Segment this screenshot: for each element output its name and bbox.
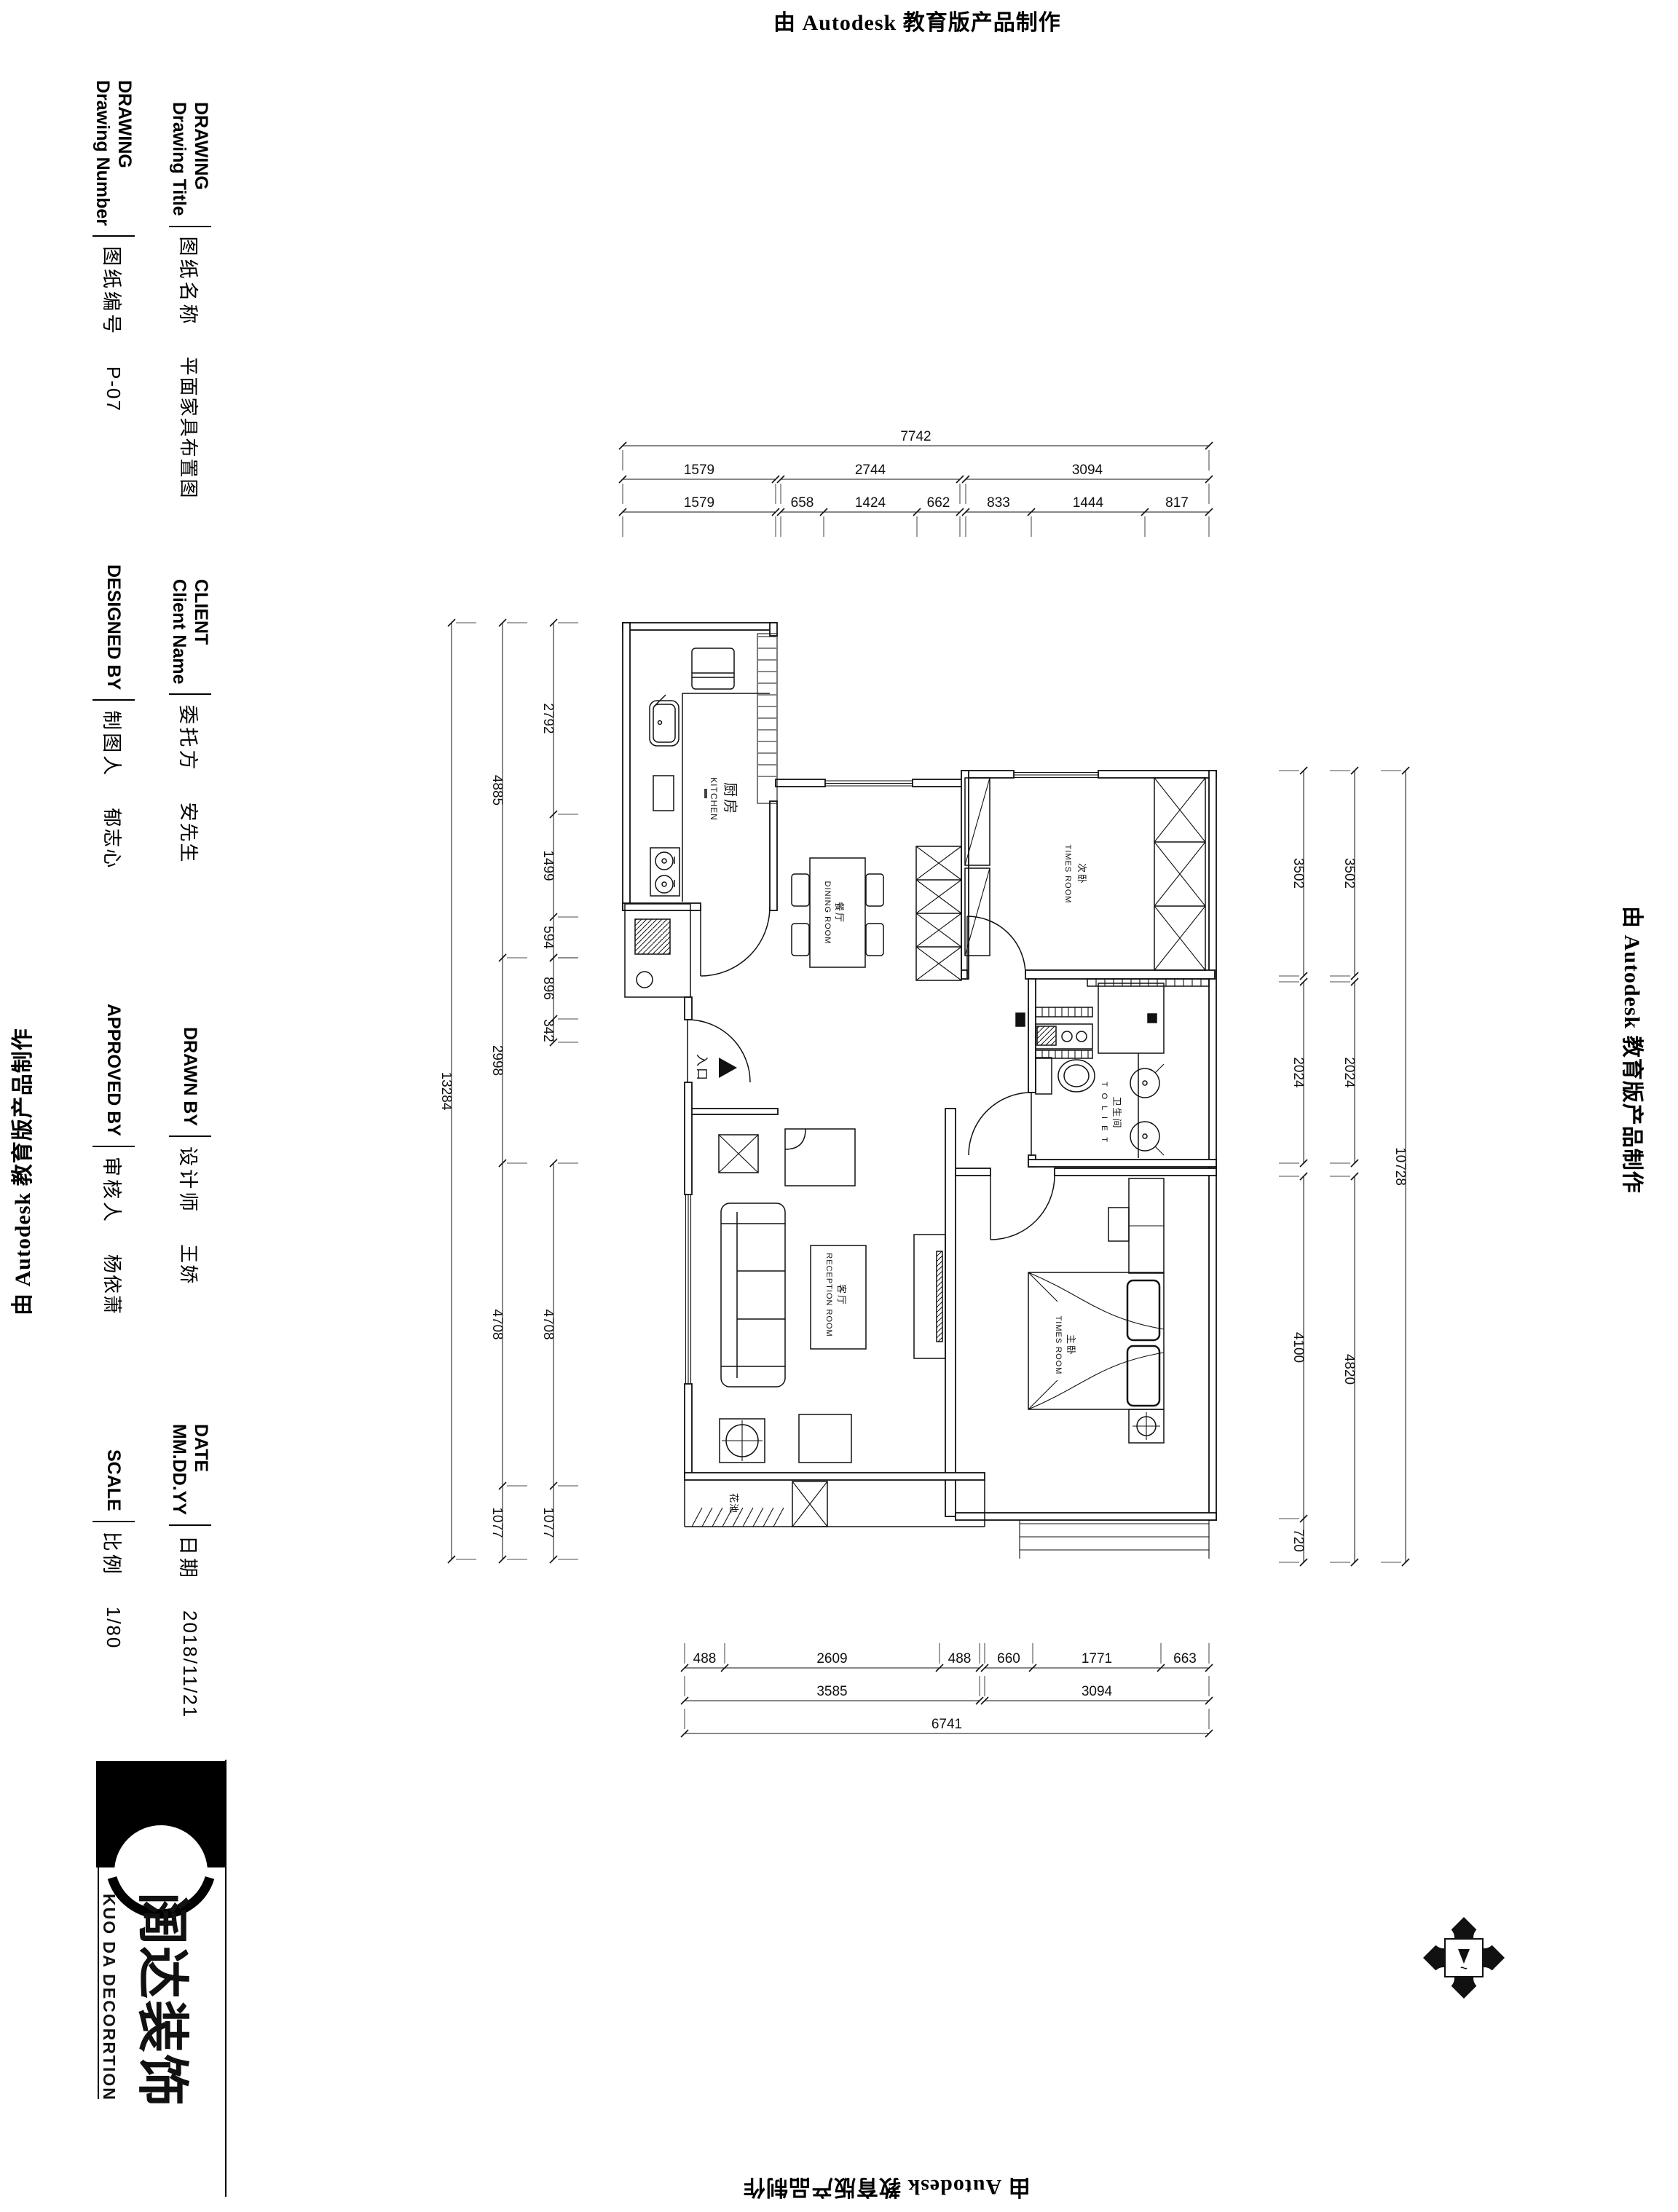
svg-text:次卧: 次卧	[1076, 863, 1087, 885]
titleblock-date: DATEMM.DD.YY 日期 2018/11/21	[162, 1424, 218, 1718]
logo-text-en: KUO DA DECORRTION	[100, 1894, 119, 2101]
svg-text:2792: 2792	[540, 703, 556, 733]
kuoda-logo-icon: 阔达装饰 KUO DA DECORRTION	[96, 1761, 226, 2103]
label-cn: 设计师	[176, 1146, 205, 1214]
svg-text:2744: 2744	[855, 463, 886, 478]
heading: DRAWN BY	[179, 1027, 201, 1126]
svg-text:T O L I E T: T O L I E T	[1100, 1082, 1108, 1144]
value: 2018/11/21	[179, 1610, 202, 1718]
svg-text:658: 658	[791, 495, 814, 511]
svg-text:主卧: 主卧	[1066, 1334, 1076, 1356]
master-label: 主卧 TIMES ROOM	[1054, 1316, 1076, 1375]
label-cn: 委托方	[176, 704, 205, 772]
svg-text:720: 720	[1291, 1529, 1306, 1552]
heading: CLIENT	[190, 579, 212, 684]
titleblock-client: CLIENTClient Name 委托方 安先生	[162, 579, 218, 864]
svg-text:4708: 4708	[540, 1309, 556, 1339]
label-cn: 制图人	[100, 710, 128, 778]
subheading: MM.DD.YY	[168, 1424, 190, 1515]
titleblock-drawn-by: DRAWN BY 设计师 王娇	[162, 1027, 218, 1285]
living-label: 客厅 RECEPTION ROOM	[824, 1253, 847, 1337]
svg-text:1077: 1077	[540, 1507, 556, 1538]
value: 王娇	[177, 1244, 204, 1285]
titleblock-approved-by: APPROVED BY 审核人 杨依萧	[85, 1004, 142, 1315]
svg-text:10728: 10728	[1393, 1147, 1408, 1186]
titleblock-drawing-title: DRAWINGDrawing Title 图纸名称 平面家具布置图	[162, 102, 218, 500]
entrance-arrow-icon	[719, 1058, 737, 1078]
autodesk-credit-bottom: 由 Autodesk 教育版产品制作	[743, 2173, 1031, 2205]
svg-text:厨房: 厨房	[722, 782, 738, 816]
svg-text:4100: 4100	[1291, 1332, 1306, 1363]
north-arrow-icon	[1420, 1914, 1508, 2002]
master-furniture	[1028, 1178, 1164, 1443]
svg-text:花池: 花池	[728, 1493, 739, 1514]
heading: APPROVED BY	[103, 1004, 125, 1136]
svg-text:817: 817	[1165, 495, 1189, 511]
svg-text:663: 663	[1173, 1651, 1197, 1666]
svg-text:餐厅: 餐厅	[834, 902, 845, 924]
svg-text:1579: 1579	[684, 495, 714, 511]
entrance-label: 入口	[695, 1054, 709, 1082]
flower-label: 花池	[728, 1493, 739, 1514]
label-cn: 比例	[100, 1532, 128, 1577]
company-logo: 阔达装饰 KUO DA DECORRTION	[92, 1761, 226, 2103]
svg-text:594: 594	[540, 926, 556, 949]
subheading: Client Name	[168, 579, 190, 684]
svg-text:2998: 2998	[489, 1045, 505, 1076]
titleblock-drawing-number: DRAWINGDrawing Number 图纸编号 P-07	[85, 80, 142, 412]
label-cn: 图纸名称	[176, 237, 205, 327]
heading: DRAWING	[190, 102, 212, 216]
logo-text-cn: 阔达装饰	[133, 1892, 191, 2103]
doors	[688, 907, 1055, 1240]
autodesk-credit-top: 由 Autodesk 教育版产品制作	[773, 4, 1061, 36]
svg-text:客厅: 客厅	[836, 1284, 847, 1306]
svg-text:488: 488	[693, 1651, 717, 1666]
svg-text:7742: 7742	[900, 429, 931, 444]
svg-text:2609: 2609	[816, 1651, 847, 1666]
svg-text:1077: 1077	[489, 1507, 505, 1538]
value: 1/80	[103, 1607, 125, 1650]
separator	[92, 699, 135, 701]
svg-text:3502: 3502	[1291, 858, 1306, 889]
value: 安先生	[177, 802, 204, 863]
svg-text:342: 342	[540, 1019, 556, 1042]
svg-text:TIMES ROOM: TIMES ROOM	[1054, 1316, 1063, 1375]
svg-text:660: 660	[997, 1651, 1020, 1666]
svg-text:TIMES ROOM: TIMES ROOM	[1063, 845, 1072, 904]
drawing-sheet: 由 Autodesk 教育版产品制作 由 Autodesk 教育版产品制作 由 …	[0, 0, 1678, 2212]
heading: DESIGNED BY	[103, 564, 125, 690]
separator	[92, 1146, 135, 1147]
svg-text:6741: 6741	[931, 1717, 962, 1732]
titleblock-designed-by: DESIGNED BY 制图人 郁志心	[85, 564, 142, 869]
value: 郁志心	[101, 808, 127, 869]
separator	[169, 1135, 211, 1137]
toilet-label: 卫生间 T O L I E T	[1100, 1082, 1122, 1144]
separator	[169, 1524, 211, 1526]
svg-text:488: 488	[948, 1651, 972, 1666]
svg-text:4708: 4708	[489, 1309, 505, 1339]
autodesk-credit-left: 由 Autodesk 教育版产品制作	[4, 1028, 36, 1315]
svg-text:3585: 3585	[816, 1684, 847, 1699]
svg-text:3094: 3094	[1082, 1684, 1113, 1699]
svg-text:KITCHEN: KITCHEN	[709, 777, 719, 821]
separator	[169, 226, 211, 227]
floor-plan: 厨房 KITCHEN 餐厅 DINING ROOM 次卧 TIMES ROOM …	[408, 393, 1427, 1777]
svg-text:3502: 3502	[1342, 858, 1357, 889]
label-cn: 审核人	[100, 1157, 128, 1224]
svg-text:1771: 1771	[1082, 1651, 1112, 1666]
kitchen-label: 厨房 KITCHEN	[704, 777, 738, 821]
heading: DATE	[190, 1424, 212, 1515]
dimension-chains: 7742157927443094157965814246628331444817…	[438, 429, 1409, 1737]
heading: SCALE	[103, 1449, 125, 1511]
svg-text:13284: 13284	[438, 1072, 454, 1111]
separator	[169, 693, 211, 695]
svg-text:1579: 1579	[684, 463, 714, 478]
value: 平面家具布置图	[177, 357, 204, 500]
bedroom2-label: 次卧 TIMES ROOM	[1063, 845, 1087, 904]
autodesk-credit-right: 由 Autodesk 教育版产品制作	[1618, 906, 1650, 1194]
kitchen-fixtures	[625, 648, 770, 997]
svg-text:3094: 3094	[1072, 463, 1103, 478]
label-cn: 日期	[176, 1535, 205, 1581]
svg-text:卫生间: 卫生间	[1111, 1096, 1122, 1129]
heading: DRAWING	[114, 80, 135, 226]
separator	[92, 1521, 135, 1522]
subheading: Drawing Number	[92, 80, 114, 226]
svg-text:1499: 1499	[540, 850, 556, 881]
svg-text:入口: 入口	[695, 1054, 709, 1082]
titleblock-scale: SCALE 比例 1/80	[85, 1449, 142, 1649]
svg-text:2024: 2024	[1291, 1057, 1306, 1088]
value: P-07	[103, 366, 125, 412]
label-cn: 图纸编号	[100, 246, 128, 336]
subheading: Drawing Title	[168, 102, 190, 216]
svg-text:1424: 1424	[855, 495, 886, 511]
dining-label: 餐厅 DINING ROOM	[823, 881, 845, 945]
svg-text:896: 896	[540, 977, 556, 1000]
separator	[92, 235, 135, 237]
svg-text:1444: 1444	[1073, 495, 1104, 511]
svg-text:RECEPTION ROOM: RECEPTION ROOM	[824, 1253, 833, 1337]
svg-text:4885: 4885	[489, 775, 505, 806]
svg-text:2024: 2024	[1342, 1057, 1357, 1088]
dining-furniture	[792, 846, 961, 980]
toilet-fixtures	[1016, 979, 1209, 1158]
svg-text:662: 662	[927, 495, 950, 511]
svg-text:833: 833	[987, 495, 1010, 511]
value: 杨依萧	[101, 1254, 127, 1315]
svg-text:4820: 4820	[1342, 1354, 1357, 1385]
svg-text:DINING ROOM: DINING ROOM	[823, 881, 832, 945]
